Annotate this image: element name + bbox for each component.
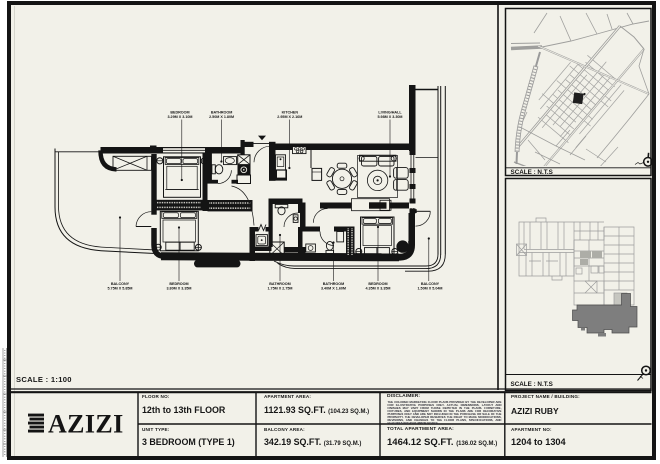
- svg-text:2.95M X 2.16M: 2.95M X 2.16M: [277, 115, 302, 119]
- svg-text:3.29M X 3.10M: 3.29M X 3.10M: [167, 115, 192, 119]
- svg-text:2.50M X 1.80M: 2.50M X 1.80M: [209, 115, 234, 119]
- svg-text:AZIZI: AZIZI: [48, 410, 124, 436]
- svg-text:5.75M X 5.85M: 5.75M X 5.85M: [107, 286, 132, 290]
- svg-text:5.98M X 3.30M: 5.98M X 3.30M: [377, 115, 402, 119]
- svg-text:1.50M X 5.04M: 1.50M X 5.04M: [417, 286, 442, 290]
- svg-text:SCALE : N.T.S: SCALE : N.T.S: [511, 381, 553, 388]
- svg-text:3.40M X 1.60M: 3.40M X 1.60M: [321, 286, 346, 290]
- svg-text:1.75M X 2.75M: 1.75M X 2.75M: [267, 286, 292, 290]
- svg-text:4.35M X 3.35M: 4.35M X 3.35M: [365, 286, 390, 290]
- svg-text:3.80M X 3.35M: 3.80M X 3.35M: [166, 286, 191, 290]
- svg-text:SCALE : N.T.S: SCALE : N.T.S: [511, 169, 553, 176]
